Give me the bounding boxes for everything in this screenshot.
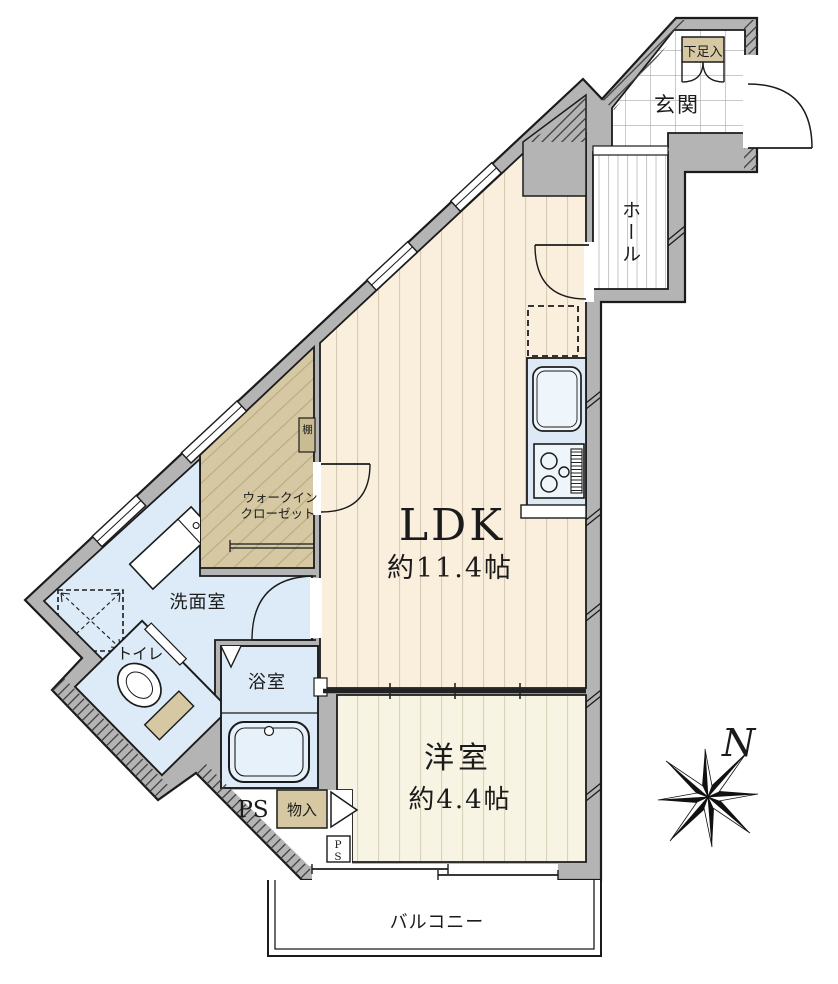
floor-plan-page: 玄関 ホール LDK 約11.4帖 洋室 約4.4帖 ウォークイン クローゼット… — [0, 0, 838, 984]
room-bath — [221, 646, 327, 788]
wic-shelf — [299, 418, 315, 452]
compass-north-label: N — [721, 721, 757, 765]
room-genkan — [612, 30, 745, 147]
room-hall — [593, 146, 668, 289]
counter-end-panel — [521, 505, 586, 518]
room-wic — [200, 347, 314, 568]
shoe-cabinet — [682, 37, 724, 62]
kitchen-sink — [533, 367, 581, 431]
entrance-step — [593, 146, 668, 155]
stove — [534, 444, 584, 498]
storage-closet — [277, 790, 327, 828]
floor-plan: 玄関 ホール LDK 約11.4帖 洋室 約4.4帖 ウォークイン クローゼット… — [0, 0, 838, 984]
ps-shaft-box — [327, 836, 350, 862]
room-western — [337, 695, 586, 862]
compass-icon: N — [658, 721, 758, 847]
bath-vent — [314, 678, 327, 696]
balcony — [268, 864, 601, 956]
